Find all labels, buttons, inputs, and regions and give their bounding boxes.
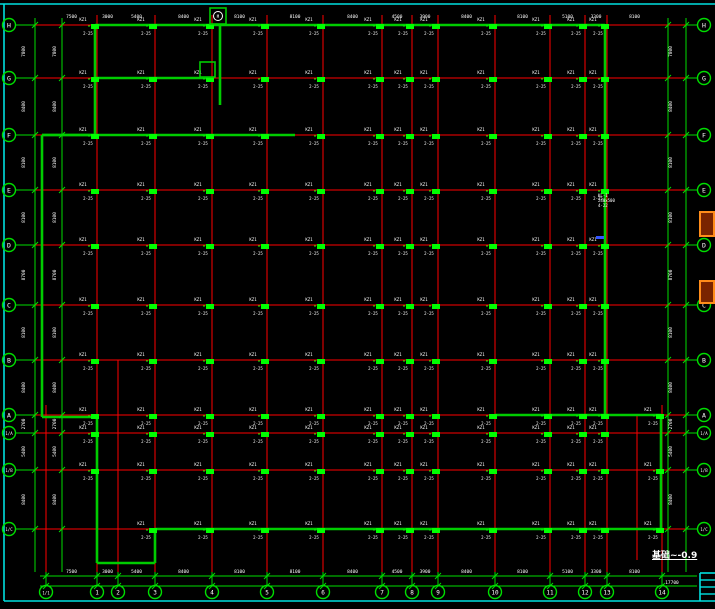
column-marker [406,359,414,364]
column-tag: 2-25 [648,476,658,481]
column-tag: KZ1 [249,70,257,75]
column-tag: KZ1 [79,297,87,302]
highlight-box [700,212,714,236]
dim-text-bottom: 3000 [102,569,113,575]
column-tag: 2-25 [368,476,378,481]
column-tag: 2-25 [83,366,93,371]
column-tag: KZ1 [305,521,313,526]
axis-bubble-label: D [7,241,11,249]
column-marker [489,244,497,249]
column-tag: 2-25 [83,196,93,201]
column-tag: 2-25 [536,311,546,316]
column-tag: 2-25 [253,196,263,201]
column-tag: KZ1 [567,237,575,242]
column-tag: 2-25 [536,535,546,540]
column-tag: 2-25 [481,141,491,146]
column-marker [91,134,99,139]
column-tag: 2-25 [253,366,263,371]
column-tag: 2-25 [593,141,603,146]
dim-text-bottom: 4500 [392,569,403,575]
column-marker [206,189,214,194]
dim-text-left: 8400 [21,494,27,505]
column-tag: KZ1 [567,297,575,302]
column-marker [579,528,587,533]
axis-bubble-label: E [702,186,706,194]
dim-text-left: 8100 [52,157,58,168]
column-marker [601,134,609,139]
column-tag: KZ1 [79,237,87,242]
dim-text-total: 17700 [665,580,679,586]
column-marker [406,24,414,29]
column-marker [489,414,497,419]
column-marker [149,244,157,249]
dim-text-left: 8700 [52,269,58,280]
column-tag: KZ1 [249,17,257,22]
column-marker [544,134,552,139]
column-tag: KZ1 [137,425,145,430]
dim-text-left: 7800 [52,46,58,57]
column-marker [601,77,609,82]
dim-text-right: 8100 [668,327,674,338]
column-tag: KZ1 [589,425,597,430]
dim-text-top: 3300 [591,14,602,20]
column-marker [376,304,384,309]
column-tag: KZ1 [137,182,145,187]
column-tag: KZ1 [249,182,257,187]
column-marker [489,189,497,194]
column-marker [206,414,214,419]
column-marker [261,528,269,533]
column-marker [601,414,609,419]
dim-text-bottom: 8400 [347,569,358,575]
column-tag: KZ1 [364,237,372,242]
dim-text-right: 2700 [668,418,674,429]
column-tag: 2-25 [571,476,581,481]
column-tag: KZ1 [364,462,372,467]
column-tag: KZ1 [589,407,597,412]
column-tag: KZ1 [364,70,372,75]
axis-bubble-label: 1/B [700,468,708,473]
column-tag: 2-25 [648,421,658,426]
column-marker [317,134,325,139]
column-tag: 2-25 [571,439,581,444]
column-tag: 2-25 [398,311,408,316]
column-tag: KZ1 [194,297,202,302]
column-tag: KZ1 [532,237,540,242]
axis-bubble-label: 1/1 [42,590,50,595]
column-tag: KZ1 [477,521,485,526]
axis-bubble-label: B [7,356,11,364]
column-marker [91,469,99,474]
column-marker [601,469,609,474]
column-tag: KZ1 [567,127,575,132]
column-tag: KZ1 [567,70,575,75]
column-tag: KZ1 [477,297,485,302]
dim-text-right: 8400 [668,382,674,393]
column-marker [432,469,440,474]
column-tag: KZ1 [477,182,485,187]
column-marker [317,244,325,249]
column-tag: KZ1 [532,182,540,187]
column-marker [489,432,497,437]
column-tag: KZ1 [364,425,372,430]
axis-bubble-label: H [702,21,706,29]
column-tag: KZ1 [567,407,575,412]
column-marker [317,469,325,474]
column-tag: KZ1 [394,127,402,132]
column-marker [406,304,414,309]
column-marker [579,189,587,194]
column-tag: KZ1 [394,521,402,526]
column-marker [149,189,157,194]
dim-text-bottom: 8100 [629,569,640,575]
column-tag: KZ1 [589,462,597,467]
column-tag: KZ1 [305,352,313,357]
column-tag: 2-25 [198,535,208,540]
column-marker [601,24,609,29]
column-tag: KZ1 [305,407,313,412]
column-tag: 2-25 [571,535,581,540]
column-marker [489,304,497,309]
column-tag: 2-25 [536,84,546,89]
axis-bubble-label: 3 [153,589,157,596]
dim-text-left: 8100 [52,327,58,338]
column-tag: 2-25 [141,311,151,316]
column-marker [406,528,414,533]
column-tag: KZ1 [305,237,313,242]
column-tag: KZ1 [532,297,540,302]
column-tag: KZ1 [394,182,402,187]
dim-text-top: 8100 [290,14,301,20]
axis-bubble-label: G [702,74,706,82]
dim-text-bottom: 3300 [591,569,602,575]
column-tag: 2-25 [368,311,378,316]
dim-text-left: 8100 [52,212,58,223]
column-tag: 2-25 [424,366,434,371]
column-tag: KZ1 [532,352,540,357]
column-tag: 2-25 [593,476,603,481]
column-tag: 2-25 [536,31,546,36]
column-tag: KZ1 [194,352,202,357]
column-tag: 2-25 [398,439,408,444]
axis-bubble-label: 1/B [5,468,13,473]
column-marker [544,189,552,194]
dim-text-left: 8400 [52,382,58,393]
column-marker [317,304,325,309]
column-tag: 2-25 [309,476,319,481]
column-tag: 2-25 [309,311,319,316]
column-marker [579,24,587,29]
column-tag: 2-25 [398,251,408,256]
column-marker [656,469,664,474]
dim-text-left: 8100 [21,327,27,338]
column-tag: 2-25 [198,141,208,146]
column-tag: KZ1 [137,237,145,242]
axis-bubble-label: H [7,21,11,29]
axis-bubble-label: 12 [581,589,589,596]
column-tag: 2-25 [481,439,491,444]
column-tag: KZ1 [644,521,652,526]
column-tag: 2-25 [141,84,151,89]
column-tag: KZ1 [137,407,145,412]
dim-text-right: 8700 [668,269,674,280]
column-tag: 2-25 [141,439,151,444]
column-tag: 2-25 [481,84,491,89]
column-tag: KZ1 [532,127,540,132]
column-tag: 2-25 [593,535,603,540]
column-tag: KZ1 [420,462,428,467]
column-tag: 2-25 [141,251,151,256]
column-tag: KZ1 [644,407,652,412]
column-tag: 2-25 [309,439,319,444]
column-tag: 2-25 [424,535,434,540]
column-marker [544,528,552,533]
column-marker [432,414,440,419]
column-tag: 2-25 [648,535,658,540]
axis-bubble-label: 1/C [700,527,708,532]
column-tag: 2-25 [198,31,208,36]
column-tag: KZ1 [364,182,372,187]
column-tag: 2-25 [368,251,378,256]
column-marker [489,77,497,82]
column-marker [432,304,440,309]
column-tag: KZ1 [137,352,145,357]
column-tag: KZ1 [305,182,313,187]
column-tag: 2-25 [253,311,263,316]
column-tag: 2-25 [253,439,263,444]
column-tag: KZ1 [305,297,313,302]
dim-text-left: 5400 [52,446,58,457]
elevation-note: 基础~-0.9 [652,548,697,561]
column-tag: 2-25 [571,196,581,201]
column-marker [261,24,269,29]
column-tag: 2-25 [141,31,151,36]
column-tag: KZ1 [137,297,145,302]
column-tag: 2-25 [481,366,491,371]
column-tag: 2-25 [253,84,263,89]
column-marker [544,359,552,364]
note-block-text: 4-22 [598,203,608,208]
column-tag: KZ1 [364,407,372,412]
column-tag: 2-25 [141,196,151,201]
column-tag: KZ1 [567,352,575,357]
column-tag: 2-25 [424,311,434,316]
column-tag: KZ1 [79,17,87,22]
column-tag: KZ1 [420,407,428,412]
column-tag: KZ1 [567,462,575,467]
column-tag: 2-25 [481,31,491,36]
column-marker [261,244,269,249]
column-marker [544,24,552,29]
column-tag: KZ1 [589,70,597,75]
column-tag: KZ1 [477,352,485,357]
column-tag: 2-25 [398,476,408,481]
column-marker [376,432,384,437]
column-marker [376,359,384,364]
column-marker [489,528,497,533]
column-marker [206,528,214,533]
column-tag: KZ1 [364,297,372,302]
column-tag: 2-25 [398,366,408,371]
column-tag: 2-25 [198,476,208,481]
column-tag: KZ1 [532,407,540,412]
column-marker [432,77,440,82]
detail-mark-label: M [217,14,220,19]
column-tag: KZ1 [305,462,313,467]
column-tag: KZ1 [249,297,257,302]
column-marker [261,359,269,364]
column-tag: KZ1 [567,425,575,430]
highlight-box [700,281,714,303]
column-tag: 2-25 [198,251,208,256]
column-tag: 2-25 [398,535,408,540]
column-marker [579,77,587,82]
column-tag: 2-25 [309,535,319,540]
dim-text-left: 8400 [52,101,58,112]
column-tag: KZ1 [532,425,540,430]
column-tag: 2-25 [309,251,319,256]
column-tag: KZ1 [394,297,402,302]
column-marker [406,189,414,194]
column-tag: 2-25 [593,251,603,256]
column-tag: 2-25 [253,251,263,256]
dim-text-left: 2700 [21,418,27,429]
column-tag: 2-25 [368,535,378,540]
column-marker [656,414,664,419]
dim-text-bottom: 5400 [131,569,142,575]
dim-text-left: 8100 [21,212,27,223]
column-tag: KZ1 [194,17,202,22]
cad-viewport: KZ12-25KZ12-25KZ12-25KZ12-25KZ12-25KZ12-… [0,0,715,609]
column-tag: KZ1 [477,407,485,412]
column-tag: 2-25 [368,366,378,371]
column-tag: KZ1 [532,17,540,22]
column-marker [91,189,99,194]
column-tag: 2-25 [83,84,93,89]
column-marker [544,432,552,437]
column-tag: KZ1 [532,70,540,75]
column-tag: KZ1 [79,462,87,467]
column-tag: 2-25 [309,366,319,371]
column-marker [544,304,552,309]
column-tag: 2-25 [83,141,93,146]
axis-bubble-label: 6 [321,589,325,596]
axis-bubble-label: C [7,301,11,309]
axis-bubble-label: 1/C [5,527,13,532]
column-tag: 2-25 [424,476,434,481]
column-tag: KZ1 [305,425,313,430]
column-tag: KZ1 [137,462,145,467]
column-marker [149,304,157,309]
column-marker [544,244,552,249]
dim-text-right: 5400 [668,446,674,457]
column-marker [406,469,414,474]
column-tag: 2-25 [398,84,408,89]
column-tag: 2-25 [368,31,378,36]
dim-text-bottom: 8100 [517,569,528,575]
column-marker [432,24,440,29]
column-tag: 2-25 [198,84,208,89]
column-marker [149,432,157,437]
column-marker [91,304,99,309]
cad-canvas: KZ12-25KZ12-25KZ12-25KZ12-25KZ12-25KZ12-… [0,0,715,609]
dim-text-top: 8100 [629,14,640,20]
column-tag: KZ1 [305,70,313,75]
column-marker [376,24,384,29]
column-tag: KZ1 [305,17,313,22]
axis-bubble-label: 8 [410,589,414,596]
dim-text-bottom: 7500 [66,569,77,575]
column-marker [149,469,157,474]
column-tag: 2-25 [571,251,581,256]
column-tag: KZ1 [194,237,202,242]
dim-text-left: 5400 [21,446,27,457]
column-tag: 2-25 [368,141,378,146]
column-tag: KZ1 [567,182,575,187]
column-tag: 2-25 [593,439,603,444]
column-marker [149,414,157,419]
axis-bubble-label: 10 [491,589,499,596]
axis-bubble-label: E [7,186,11,194]
column-tag: KZ1 [137,127,145,132]
axis-bubble-label: 14 [658,589,666,596]
column-marker [489,24,497,29]
column-marker [579,134,587,139]
column-tag: 2-25 [141,366,151,371]
column-tag: KZ1 [249,462,257,467]
dim-text-top: 8400 [461,14,472,20]
column-tag: KZ1 [249,425,257,430]
column-marker [206,359,214,364]
column-tag: KZ1 [79,425,87,430]
column-marker [406,77,414,82]
dim-text-top: 8100 [517,14,528,20]
column-tag: KZ1 [420,127,428,132]
column-marker [317,414,325,419]
column-tag: 2-25 [593,84,603,89]
dim-text-right: 7800 [668,46,674,57]
dim-text-bottom: 5100 [562,569,573,575]
column-marker [317,189,325,194]
column-tag: KZ1 [364,521,372,526]
column-marker [579,359,587,364]
column-tag: 2-25 [309,141,319,146]
axis-bubble-label: G [7,74,11,82]
column-tag: 2-25 [571,311,581,316]
column-tag: 2-25 [536,196,546,201]
dim-text-left: 8400 [21,382,27,393]
column-marker [579,432,587,437]
column-tag: 2-25 [481,535,491,540]
column-tag: KZ1 [567,521,575,526]
axis-bubble-label: 2 [116,589,120,596]
column-tag: KZ1 [394,462,402,467]
axis-bubble-label: F [7,131,11,139]
column-tag: KZ1 [532,521,540,526]
column-marker [579,304,587,309]
column-tag: KZ1 [589,297,597,302]
column-marker [376,528,384,533]
column-tag: KZ1 [249,521,257,526]
column-marker [317,432,325,437]
column-tag: 2-25 [368,439,378,444]
column-marker [149,24,157,29]
column-marker [544,77,552,82]
dim-text-bottom: 8400 [461,569,472,575]
column-marker [91,414,99,419]
axis-bubble-label: F [702,131,706,139]
axis-bubble-label: 7 [380,589,384,596]
